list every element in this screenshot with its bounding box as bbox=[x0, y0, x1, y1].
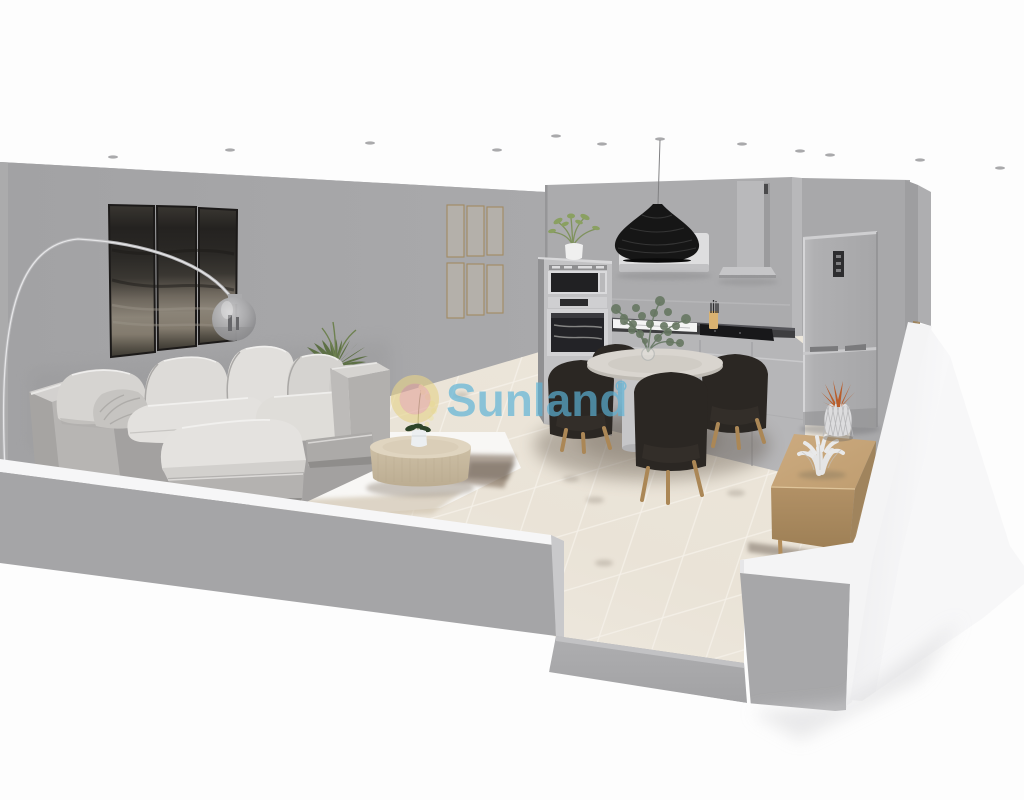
svg-text:Sunland: Sunland bbox=[446, 374, 627, 426]
svg-text:R: R bbox=[619, 385, 624, 391]
